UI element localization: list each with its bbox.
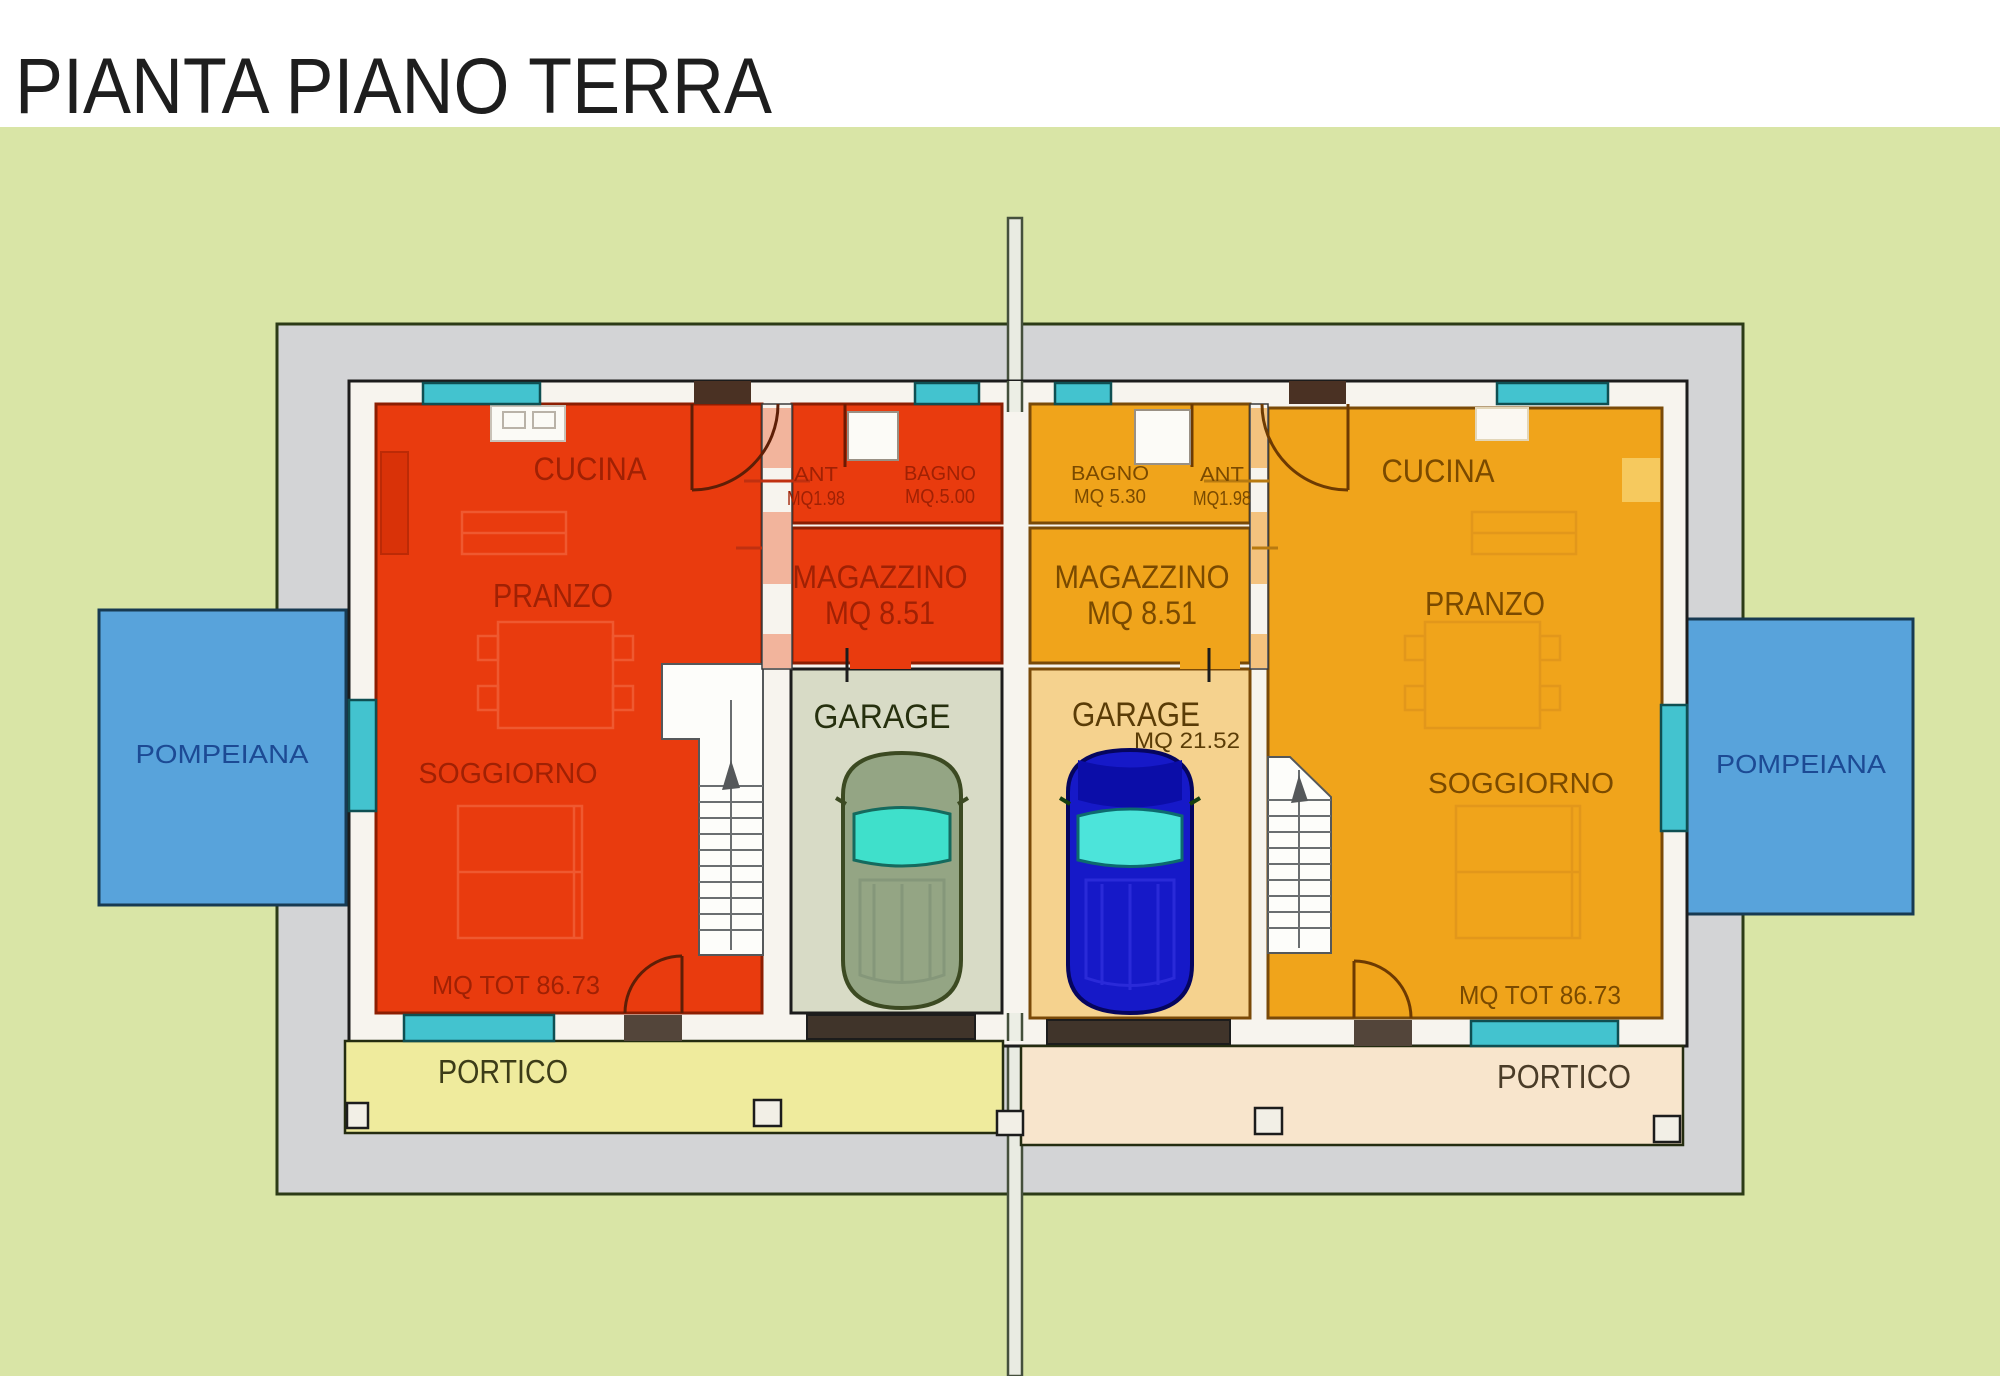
svg-text:MAGAZZINO: MAGAZZINO (1055, 559, 1230, 595)
svg-text:MAGAZZINO: MAGAZZINO (793, 559, 968, 595)
svg-text:MQ 8.51: MQ 8.51 (825, 595, 935, 631)
svg-text:GARAGE: GARAGE (814, 698, 951, 736)
svg-text:CUCINA: CUCINA (534, 451, 648, 487)
svg-text:PRANZO: PRANZO (1425, 585, 1545, 622)
svg-text:POMPEIANA: POMPEIANA (136, 739, 310, 769)
svg-text:PRANZO: PRANZO (493, 577, 613, 614)
svg-text:MQ1.98: MQ1.98 (1193, 488, 1251, 510)
svg-text:MQ TOT 86.73: MQ TOT 86.73 (1459, 980, 1621, 1010)
svg-text:ANT: ANT (1200, 464, 1244, 486)
svg-text:MQ.5.00: MQ.5.00 (905, 486, 975, 508)
svg-text:PORTICO: PORTICO (438, 1053, 568, 1090)
svg-text:MQ1.98: MQ1.98 (787, 488, 845, 510)
svg-text:MQ 8.51: MQ 8.51 (1087, 595, 1197, 631)
svg-text:MQ 5.30: MQ 5.30 (1074, 486, 1146, 508)
svg-text:BAGNO: BAGNO (904, 463, 976, 485)
svg-text:MQ TOT 86.73: MQ TOT 86.73 (432, 970, 600, 1000)
svg-text:CUCINA: CUCINA (1382, 453, 1496, 489)
svg-text:SOGGIORNO: SOGGIORNO (419, 758, 598, 790)
svg-text:SOGGIORNO: SOGGIORNO (1428, 768, 1614, 800)
svg-text:PIANTA PIANO TERRA: PIANTA PIANO TERRA (15, 41, 772, 130)
svg-text:BAGNO: BAGNO (1071, 463, 1149, 485)
svg-text:POMPEIANA: POMPEIANA (1716, 749, 1887, 779)
svg-text:PORTICO: PORTICO (1497, 1058, 1631, 1095)
svg-text:ANT: ANT (794, 464, 838, 486)
svg-text:MQ 21.52: MQ 21.52 (1134, 728, 1240, 753)
